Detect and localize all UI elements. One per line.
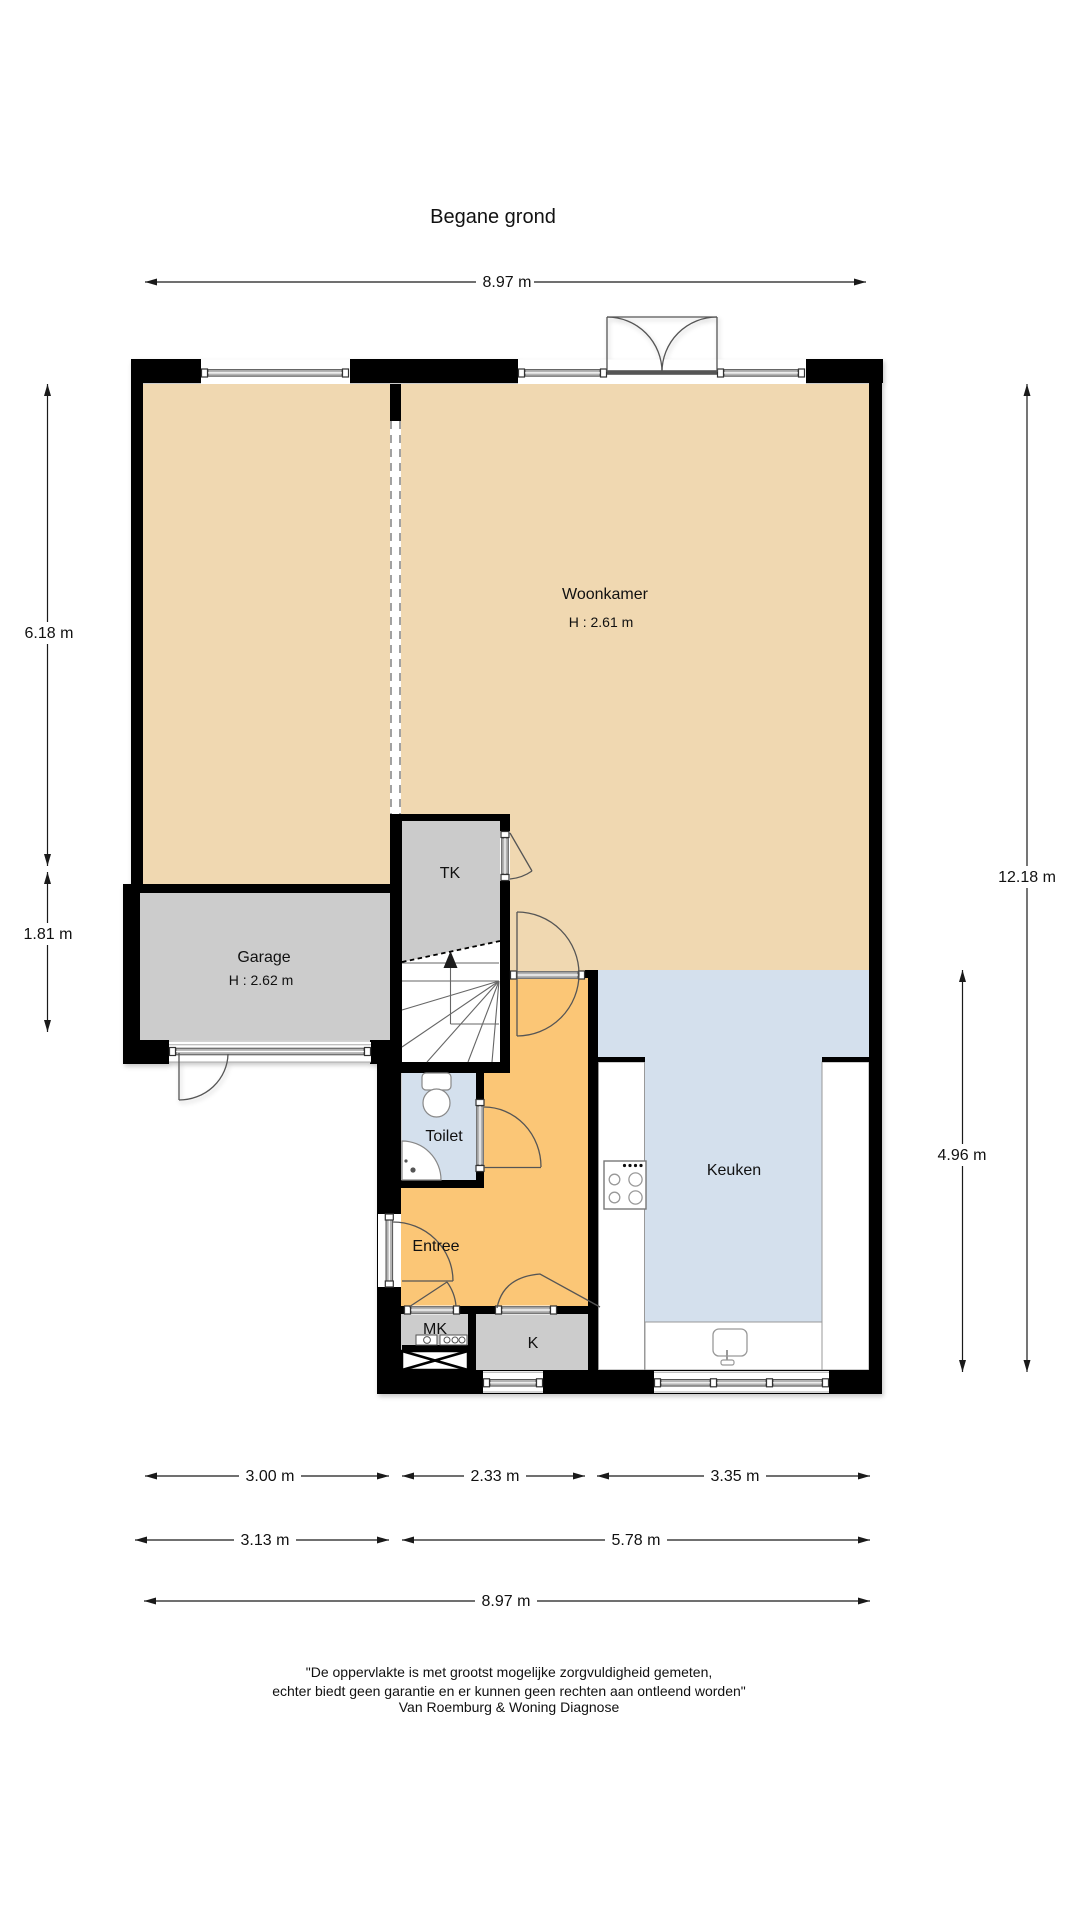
svg-text:8.97 m: 8.97 m [482,1593,531,1610]
svg-text:Begane grond: Begane grond [430,206,556,228]
svg-text:8.97 m: 8.97 m [483,274,532,291]
svg-text:12.18 m: 12.18 m [998,869,1056,886]
svg-text:Woonkamer: Woonkamer [562,586,649,603]
svg-text:Toilet: Toilet [425,1128,463,1145]
svg-text:2.33 m: 2.33 m [471,1468,520,1485]
svg-text:Entree: Entree [412,1238,459,1255]
svg-text:4.96 m: 4.96 m [938,1147,987,1164]
svg-text:MK: MK [423,1321,447,1338]
svg-text:3.35 m: 3.35 m [711,1468,760,1485]
svg-text:Van Roemburg & Woning Diagnose: Van Roemburg & Woning Diagnose [399,1699,620,1715]
svg-text:3.00 m: 3.00 m [246,1468,295,1485]
svg-text:3.13 m: 3.13 m [241,1532,290,1549]
svg-text:6.18 m: 6.18 m [25,625,74,642]
svg-text:5.78 m: 5.78 m [612,1532,661,1549]
svg-text:"De oppervlakte is met grootst: "De oppervlakte is met grootst mogelijke… [306,1664,713,1680]
svg-text:echter biedt geen garantie en: echter biedt geen garantie en er kunnen … [272,1683,746,1699]
svg-text:TK: TK [440,865,461,882]
svg-text:K: K [528,1335,539,1352]
svg-text:Keuken: Keuken [707,1162,761,1179]
svg-text:H : 2.62 m: H : 2.62 m [229,972,294,988]
svg-text:H : 2.61 m: H : 2.61 m [569,614,634,630]
svg-text:Garage: Garage [237,949,290,966]
svg-text:1.81 m: 1.81 m [24,926,73,943]
